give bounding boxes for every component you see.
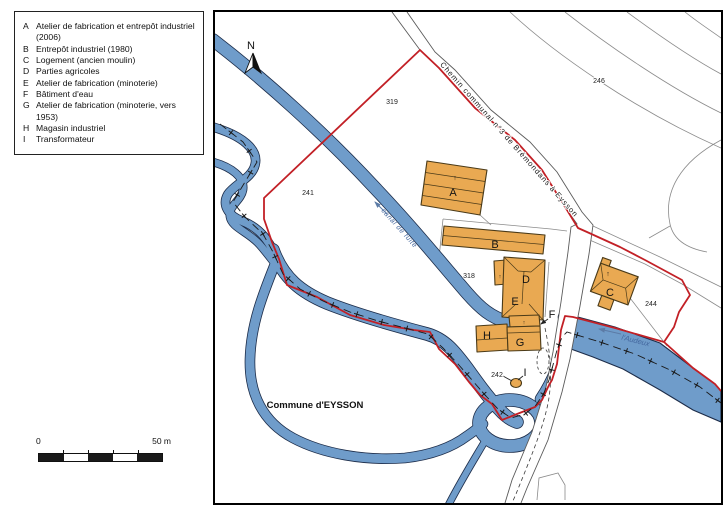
- road: [392, 12, 593, 503]
- commune-label: Commune d'EYSSON: [267, 400, 364, 411]
- legend-key: I: [23, 134, 36, 145]
- legend-item: AAtelier de fabrication et entrepôt indu…: [23, 21, 197, 44]
- legend-label: Transformateur: [36, 134, 197, 145]
- building-DE: [502, 257, 545, 320]
- orientation-mark-C: ↑: [606, 271, 610, 278]
- legend-label: Bâtiment d'eau: [36, 89, 197, 100]
- legend-label: Atelier de fabrication (minoterie, vers …: [36, 100, 197, 123]
- parcel-246: 246: [593, 78, 605, 85]
- orientation-mark-D-wing: ↑: [499, 274, 502, 280]
- legend-item: GAtelier de fabrication (minoterie, vers…: [23, 100, 197, 123]
- transformer-I: [511, 379, 522, 388]
- orientation-mark-A: ↑: [453, 175, 457, 182]
- legend-item: HMagasin industriel: [23, 123, 197, 134]
- legend-label: Logement (ancien moulin): [36, 55, 197, 66]
- legend-label: Atelier de fabrication (minoterie): [36, 78, 197, 89]
- label-building-G: G: [516, 337, 525, 349]
- building-H: [476, 324, 508, 352]
- label-transformer-I: I: [523, 367, 526, 379]
- legend-key: G: [23, 100, 36, 123]
- legend-item: BEntrepôt industriel (1980): [23, 44, 197, 55]
- scale-end-label: 50 m: [152, 436, 171, 446]
- parcel-241: 241: [302, 190, 314, 197]
- legend-key: H: [23, 123, 36, 134]
- label-building-C: C: [606, 287, 614, 299]
- scale-bar-strip: [38, 453, 163, 462]
- river-laudeux-band: [560, 313, 721, 422]
- site-map: N Chemin communal n°3 de Brémondans à Ey…: [215, 12, 721, 503]
- legend-label: Entrepôt industriel (1980): [36, 44, 197, 55]
- label-building-E: E: [511, 296, 518, 308]
- parcel-319: 319: [386, 99, 398, 106]
- north-label: N: [247, 40, 255, 52]
- scale-bar: 0 50 m: [38, 436, 163, 462]
- legend-key: B: [23, 44, 36, 55]
- legend-item: FBâtiment d'eau: [23, 89, 197, 100]
- legend-label: Atelier de fabrication et entrepôt indus…: [36, 21, 197, 44]
- legend-item: ITransformateur: [23, 134, 197, 145]
- legend-item: EAtelier de fabrication (minoterie): [23, 78, 197, 89]
- legend-key: A: [23, 21, 36, 44]
- legend-key: C: [23, 55, 36, 66]
- label-building-H: H: [483, 330, 491, 342]
- legend-item: CLogement (ancien moulin): [23, 55, 197, 66]
- map-legend: AAtelier de fabrication et entrepôt indu…: [14, 11, 204, 155]
- legend-label: Magasin industriel: [36, 123, 197, 134]
- parcel-244: 244: [645, 301, 657, 308]
- parcel-242: 242: [491, 372, 503, 379]
- label-building-F: F: [549, 309, 556, 321]
- legend-item: DParties agricoles: [23, 66, 197, 77]
- footpath-loop-dashed: [537, 348, 549, 374]
- legend-key: D: [23, 66, 36, 77]
- parcel-318: 318: [463, 273, 475, 280]
- legend-label: Parties agricoles: [36, 66, 197, 77]
- legend-key: F: [23, 89, 36, 100]
- label-building-A: A: [449, 187, 457, 199]
- label-building-B: B: [491, 239, 498, 251]
- label-building-D: D: [522, 274, 530, 286]
- scale-start-label: 0: [36, 436, 41, 446]
- legend-key: E: [23, 78, 36, 89]
- page: { "legend": { "items": [ {"key": "A", "l…: [0, 0, 728, 515]
- orientation-mark-F: ↑: [523, 320, 526, 326]
- map-frame: N Chemin communal n°3 de Brémondans à Ey…: [213, 10, 723, 505]
